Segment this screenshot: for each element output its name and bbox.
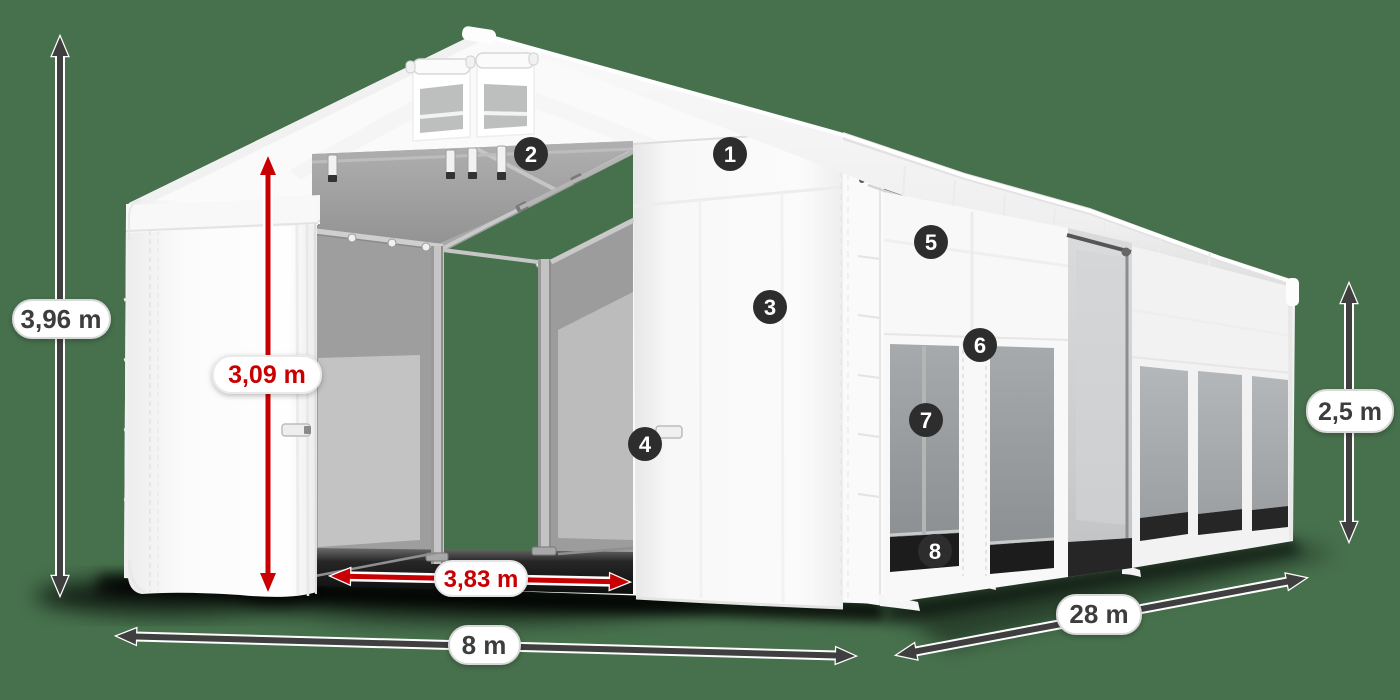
- svg-text:6: 6: [974, 333, 986, 358]
- svg-text:4: 4: [639, 432, 652, 457]
- svg-text:8 m: 8 m: [462, 630, 507, 660]
- svg-text:3,83 m: 3,83 m: [444, 566, 519, 593]
- svg-text:5: 5: [925, 230, 937, 255]
- svg-text:3,96 m: 3,96 m: [21, 304, 102, 334]
- svg-text:3: 3: [764, 295, 776, 320]
- svg-text:2,5 m: 2,5 m: [1318, 398, 1382, 426]
- svg-text:28 m: 28 m: [1069, 599, 1128, 629]
- svg-text:3,09 m: 3,09 m: [228, 361, 306, 389]
- svg-text:8: 8: [929, 539, 941, 564]
- svg-text:2: 2: [525, 142, 537, 167]
- svg-text:1: 1: [724, 142, 736, 167]
- svg-text:7: 7: [920, 408, 932, 433]
